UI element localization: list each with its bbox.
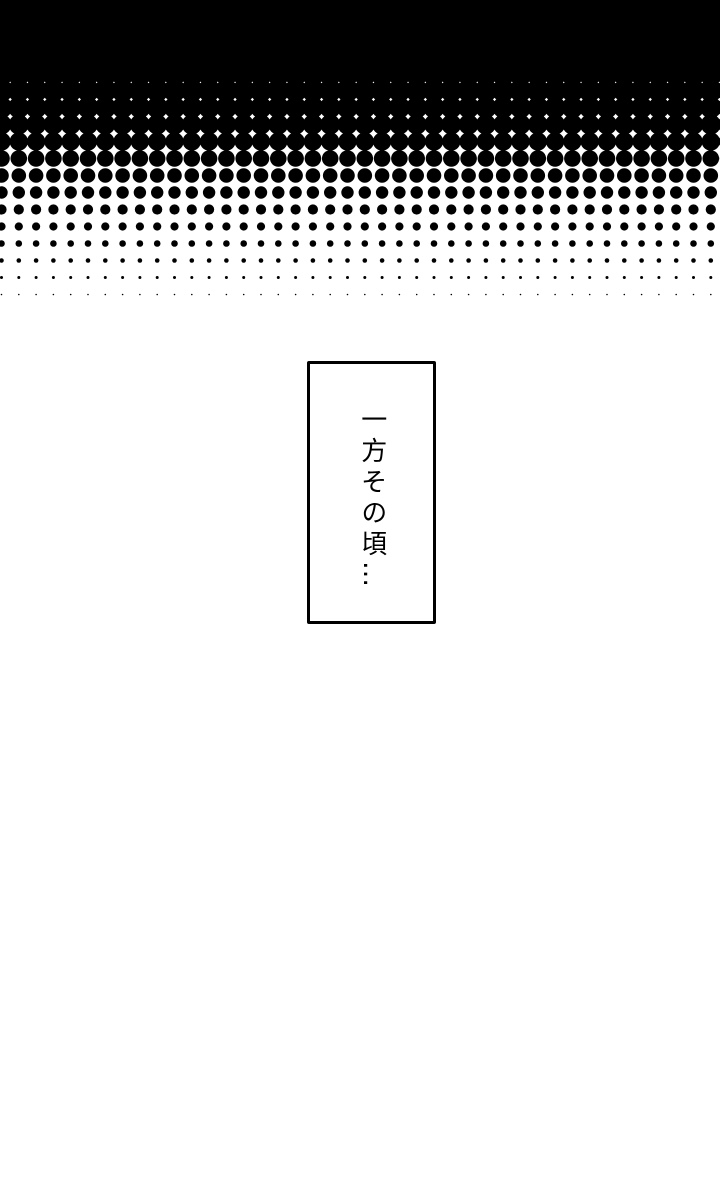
narration-text: 一方その頃… [357,394,386,592]
halftone-gradient-tone [0,0,720,300]
manga-page: 一方その頃… [0,0,720,1178]
narration-box: 一方その頃… [307,361,436,624]
